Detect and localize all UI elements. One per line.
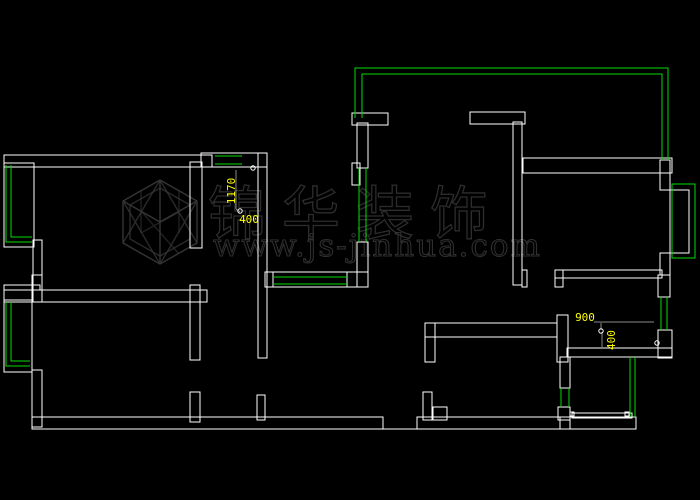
cad-floorplan-viewport: 锦华装饰 www.js-jinhua.com [0,0,700,500]
wall-segment [417,417,570,429]
dim-hall-height: 1170 [225,178,238,205]
wall-segment [567,348,672,357]
bay-window-box [4,163,34,247]
watermark: 锦华装饰 www.js-jinhua.com [123,180,542,264]
dim-hall-width: 400 [239,213,259,226]
bay-window-box [670,190,689,253]
wall-segment [190,285,200,360]
window [11,165,32,237]
wall-segment [523,158,672,173]
window [6,302,30,366]
wall-segment [557,315,568,362]
wall-segment [4,155,212,167]
dim-bath-depth: 400 [605,330,618,350]
window [672,184,695,258]
wall-segment [555,270,662,278]
wall-segment [33,240,42,302]
balcony-window [355,68,668,160]
wall-segment [357,123,368,168]
wall-segment [4,285,40,290]
watermark-cube-logo-icon [123,180,197,264]
wall-segment [425,323,435,362]
wall-segment [660,160,670,190]
wall-segment [425,323,557,337]
wall-segment [257,395,265,420]
wall-segment [265,272,273,287]
window [6,165,32,242]
wall-segment [522,270,527,287]
wall-segment [32,370,42,427]
wall-segment [433,407,447,420]
dim-bath-width: 900 [575,311,595,324]
balcony-window [362,74,662,160]
wall-segment [658,330,672,358]
watermark-url-text: www.js-jinhua.com [213,228,542,264]
walls [4,112,689,429]
wall-segment [560,417,636,429]
wall-segment [4,290,207,302]
wall-segment [32,417,383,429]
window [11,302,30,361]
floorplan-drawing: 锦华装饰 www.js-jinhua.com [0,0,700,500]
wall-segment [423,392,432,420]
